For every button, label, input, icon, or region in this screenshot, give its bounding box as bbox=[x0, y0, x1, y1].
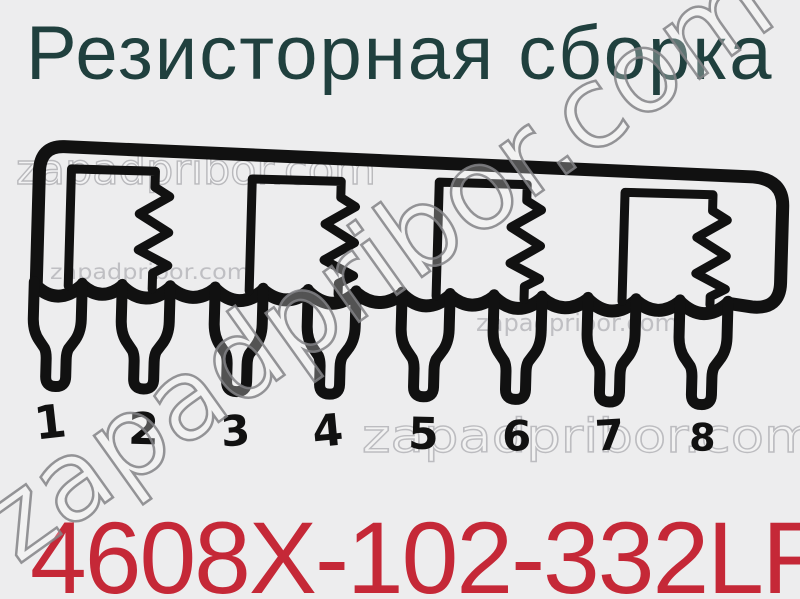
resistor-loop-2 bbox=[249, 179, 356, 295]
pin-number-2: 2 bbox=[128, 404, 160, 456]
resistor-loop-3 bbox=[436, 182, 542, 300]
pin-number-4: 4 bbox=[310, 405, 345, 459]
pin-number-8: 8 bbox=[689, 415, 717, 460]
pin-number-6: 6 bbox=[502, 411, 533, 461]
part-number: 4608X-102-332LF bbox=[30, 500, 800, 599]
page: Резисторная сборка zapadpribor.com zapad… bbox=[0, 0, 800, 599]
pin-number-3: 3 bbox=[219, 405, 252, 456]
pin-number-5: 5 bbox=[408, 408, 440, 460]
resistor-loop-4 bbox=[622, 192, 728, 305]
pin-number-1: 1 bbox=[31, 393, 69, 450]
pin-number-7: 7 bbox=[594, 410, 626, 461]
